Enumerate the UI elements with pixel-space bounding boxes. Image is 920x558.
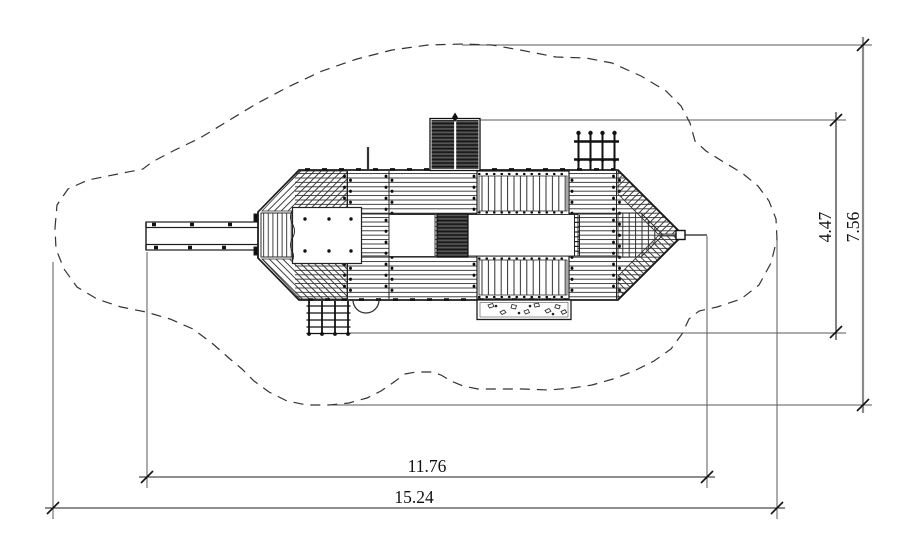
main-deck (258, 169, 683, 300)
slide-beam (146, 214, 264, 255)
bowsprit (676, 231, 707, 240)
dimension-label-safety-zone-width: 15.24 (394, 487, 434, 507)
climbing-wall (477, 300, 571, 320)
deck-opening-left (389, 215, 435, 257)
climbing-frame-caps (576, 131, 616, 162)
stern-wedge-top (262, 171, 347, 211)
bridge-upper (477, 171, 569, 215)
plan-drawing-canvas: 11.76 15.24 4.47 7.56 (0, 0, 920, 558)
dimension-label-structure-depth: 4.47 (815, 211, 835, 242)
bow-tip (676, 231, 685, 240)
climbing-frame (574, 131, 619, 170)
access-ladder (307, 301, 351, 336)
stern-wedge-bottom (262, 259, 347, 299)
dimension-safety-zone-depth: 7.56 (843, 37, 869, 413)
deck-opening-center (468, 215, 578, 257)
dimension-label-safety-zone-depth: 7.56 (843, 211, 863, 242)
dimension-safety-zone-width: 15.24 (45, 487, 785, 514)
crawl-arc (353, 300, 379, 313)
ramp (437, 214, 468, 257)
tube-slide (430, 113, 480, 171)
dimension-structure-width: 11.76 (139, 456, 715, 483)
bridge-lower (477, 256, 569, 299)
dimension-structure-depth: 4.47 (815, 112, 842, 340)
tower-platform (291, 208, 362, 264)
dimension-label-structure-width: 11.76 (408, 456, 447, 476)
plan-drawing: 11.76 15.24 4.47 7.56 (0, 0, 920, 558)
stern-section (261, 213, 293, 257)
